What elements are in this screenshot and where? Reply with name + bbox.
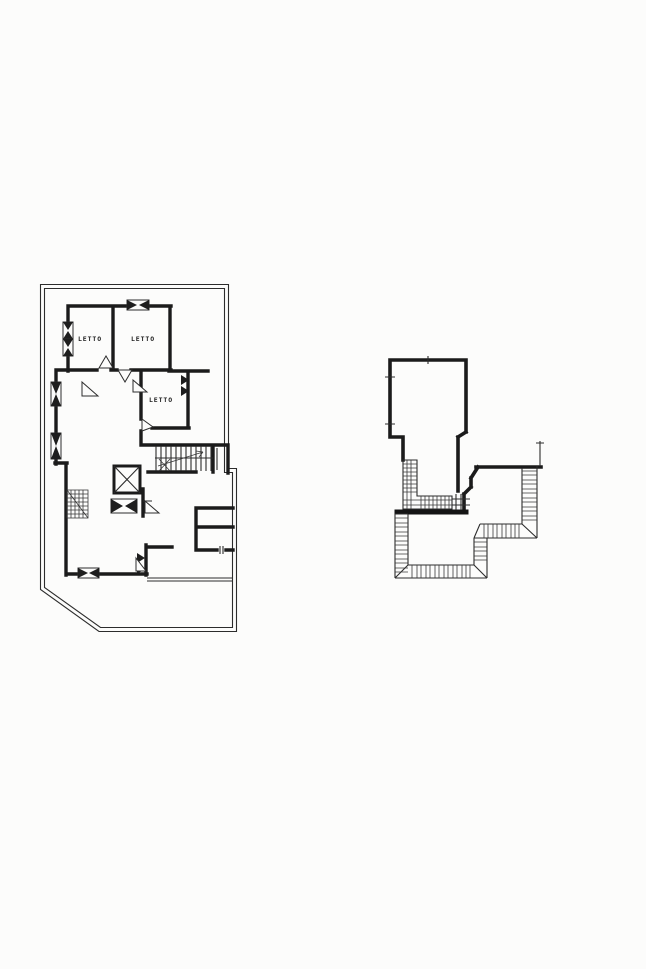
corner-steps	[67, 490, 88, 518]
door-threshold	[452, 494, 470, 510]
window-bowtie-left-1	[63, 322, 73, 339]
window-bowtie-left-2	[63, 339, 73, 356]
roof-edge-hatch	[395, 466, 537, 578]
stair-run-grid	[403, 460, 452, 509]
room-label-letto-1: LETTO	[78, 335, 102, 343]
elevator	[111, 466, 140, 513]
window-bowtie-left-3	[51, 382, 61, 406]
floor-plan-drawing: LETTO LETTO LETTO	[0, 0, 646, 969]
window-bowtie-left-4	[51, 433, 61, 459]
staircase	[155, 446, 217, 471]
stair-run-hatch	[403, 460, 452, 509]
floor-plan-sheet: LETTO LETTO LETTO	[0, 0, 646, 969]
walls	[55, 306, 233, 575]
upper-floor-plan: LETTO LETTO LETTO	[41, 285, 237, 632]
window-bowtie-top	[127, 300, 149, 310]
room-label-letto-2: LETTO	[131, 335, 155, 343]
elevator-door-symbol	[111, 499, 137, 513]
roof-edge-outline	[395, 466, 537, 578]
window-bowtie-bottom	[78, 568, 99, 578]
chimney-pole	[536, 441, 544, 466]
room-label-letto-3: LETTO	[149, 396, 173, 404]
roof-plan	[385, 356, 544, 578]
elevator-x-icon	[114, 466, 140, 493]
door-swing-symbols	[82, 356, 159, 571]
corner-steps-hatch	[67, 490, 88, 518]
